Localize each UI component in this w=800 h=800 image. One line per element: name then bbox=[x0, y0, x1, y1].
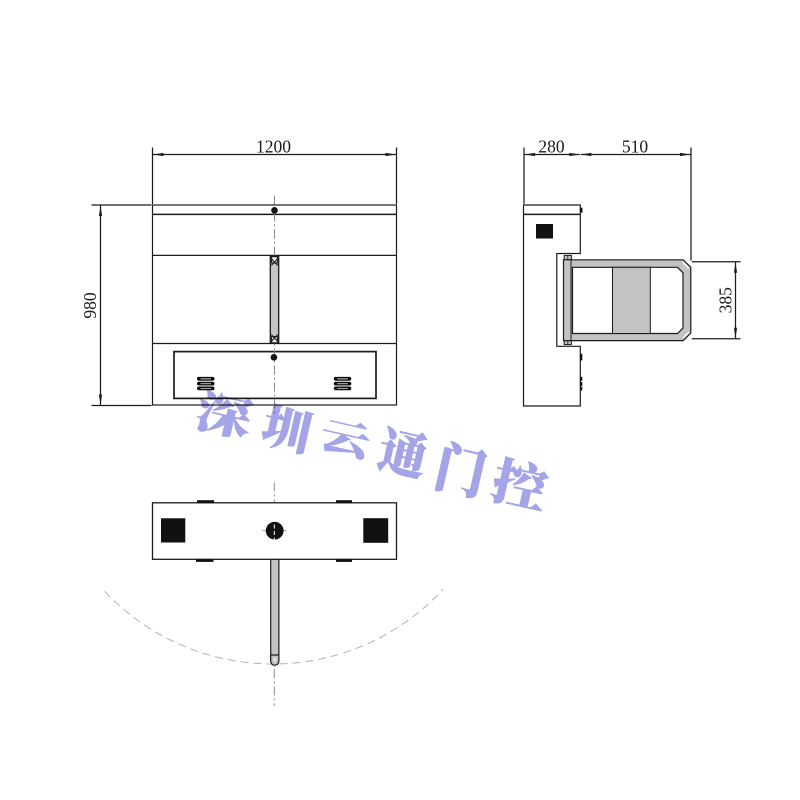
svg-text:510: 510 bbox=[622, 137, 649, 157]
svg-text:1200: 1200 bbox=[256, 137, 291, 157]
svg-text:980: 980 bbox=[80, 292, 100, 319]
svg-text:385: 385 bbox=[716, 287, 736, 314]
svg-text:280: 280 bbox=[538, 137, 565, 157]
